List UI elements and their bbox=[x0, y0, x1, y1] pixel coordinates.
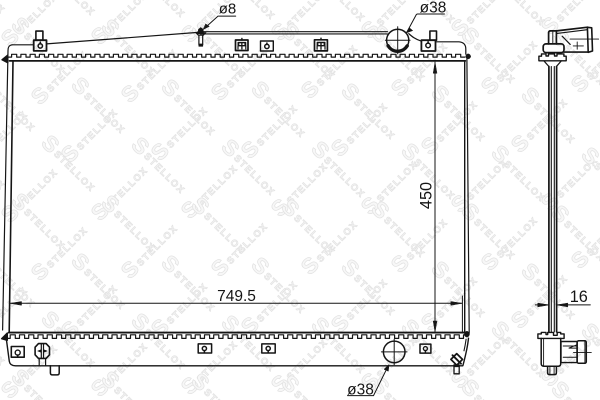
svg-text:16: 16 bbox=[570, 288, 588, 306]
svg-text:ø38: ø38 bbox=[420, 0, 447, 17]
svg-text:749.5: 749.5 bbox=[217, 288, 256, 305]
svg-text:ø38: ø38 bbox=[347, 382, 374, 399]
svg-text:450: 450 bbox=[418, 182, 436, 209]
svg-text:ø8: ø8 bbox=[219, 1, 237, 18]
